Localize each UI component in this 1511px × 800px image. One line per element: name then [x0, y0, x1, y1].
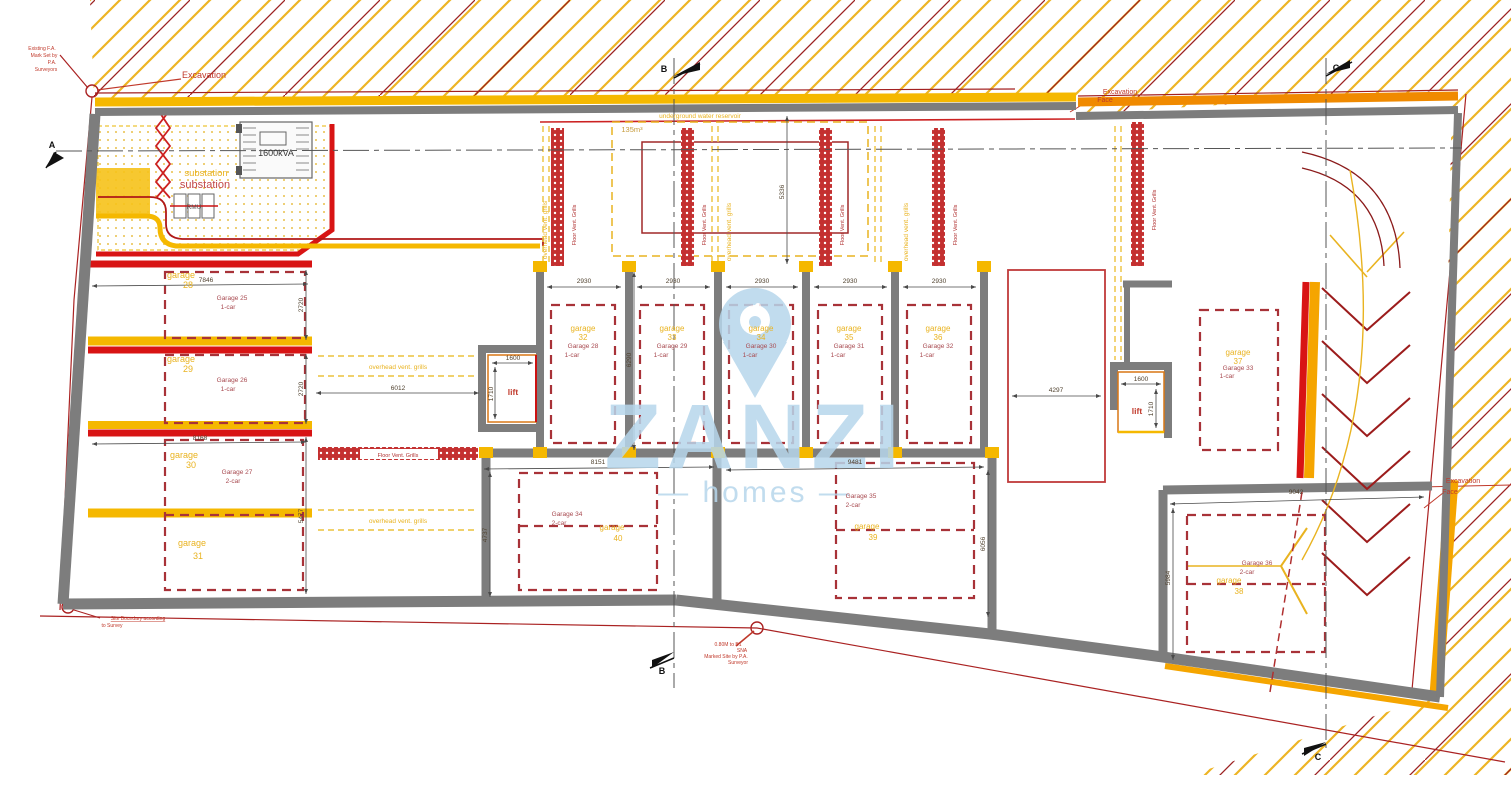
- substation-area: [96, 110, 543, 254]
- garage-yellow-num: 36: [934, 333, 943, 342]
- survey-mark-note-4: Surveyors: [35, 67, 58, 73]
- excavation-face-right-2: Face: [1442, 489, 1458, 496]
- section-c-bottom-label: C: [1315, 752, 1322, 762]
- dim-5984: 5984: [1165, 570, 1172, 585]
- floor-vent-label-3: Floor Vent. Grills: [840, 204, 846, 245]
- transformer-label: 1600kVA: [258, 148, 294, 158]
- dim-7846: 7846: [199, 277, 214, 284]
- garage-yellow-num: 40: [614, 534, 623, 543]
- garage-red-name: Garage 36: [1242, 560, 1273, 567]
- garage-yellow-num: 35: [845, 333, 854, 342]
- dim-5336: 5336: [779, 184, 786, 199]
- excavation-face-top-1: Excavation: [1103, 89, 1137, 96]
- floor-vent-label-6: Floor Vent. Grills: [378, 453, 419, 459]
- garage-yellow-tag: garage: [749, 324, 774, 333]
- garage-red-name: Garage 29: [657, 343, 688, 350]
- garage-yellow-num: 33: [668, 333, 677, 342]
- garage-red-type: 2-car: [846, 502, 862, 509]
- garage-red-type: 2-car: [226, 478, 242, 485]
- garage-red-name: Garage 33: [1223, 365, 1254, 372]
- overhead-vent-label-4: overhead vent. grills: [369, 364, 428, 371]
- garage-red-name: Garage 35: [846, 493, 877, 500]
- dim-5477: 5477: [298, 508, 305, 523]
- dim-9481: 9481: [848, 459, 863, 466]
- garage-red-type: 2-car: [552, 520, 568, 527]
- survey-mark-note-1: Existing F.A.: [28, 46, 56, 52]
- dim-8151: 8151: [591, 459, 606, 466]
- dim-6056: 6056: [980, 536, 987, 551]
- dim-9042: 9042: [1289, 489, 1304, 496]
- garage-yellow-num: 29: [183, 364, 193, 374]
- garage-red-type: 1-car: [920, 352, 936, 359]
- reservoir-caption: underground water reservoir: [659, 113, 741, 120]
- dim-1710b: 1710: [1148, 401, 1155, 416]
- garage-yellow-num: 31: [193, 551, 203, 561]
- watermark: ZANZI — homes —: [605, 288, 906, 509]
- section-c-top-label: C: [1333, 63, 1340, 73]
- dim-2930b: 2930: [666, 278, 681, 285]
- floor-vent-label-4: Floor Vent. Grills: [953, 204, 959, 245]
- lift-left-label: lift: [508, 387, 519, 397]
- garage-yellow-tag: garage: [837, 324, 862, 333]
- watermark-brand: ZANZI: [605, 386, 906, 488]
- section-a-label: A: [49, 140, 56, 150]
- site-boundary-note-1: Site Boundary according: [111, 616, 166, 622]
- excavation-face-top-2: Face: [1097, 97, 1113, 104]
- garage-red-type: 2-car: [1240, 569, 1256, 576]
- section-b-bottom-label: B: [659, 666, 666, 676]
- garage-yellow-tag: garage: [926, 324, 951, 333]
- reservoir-volume: 135m³: [621, 125, 643, 134]
- section-b-top-label: B: [661, 64, 668, 74]
- garage-red-type: 1-car: [743, 352, 759, 359]
- garage-red-type: 1-car: [831, 352, 847, 359]
- left-bay-bands: [88, 264, 312, 513]
- garage-yellow-tag: garage: [178, 538, 206, 548]
- watermark-tagline: — homes —: [658, 476, 852, 509]
- basement-floor-plan-svg: ZANZI — homes — Excavation Excavation Fa…: [0, 0, 1511, 800]
- survey-mark-note-3: P.A.: [48, 60, 57, 66]
- garage-yellow-tag: garage: [1217, 576, 1242, 585]
- garage-yellow-num: 28: [183, 280, 193, 290]
- datum-note-4: Surveyor: [728, 660, 748, 666]
- dim-2930e: 2930: [932, 278, 947, 285]
- garage-red-type: 1-car: [221, 386, 237, 393]
- dim-1600a: 1600: [506, 355, 521, 362]
- floor-vent-label-2: Floor Vent. Grills: [702, 204, 708, 245]
- garage-yellow-tag: garage: [571, 324, 596, 333]
- dim-4737: 4737: [482, 527, 489, 542]
- substation-label-yellow: substation: [184, 168, 227, 179]
- floor-vent-label-5: Floor Vent. Grills: [1152, 189, 1158, 230]
- garage-red-type: 1-car: [654, 352, 670, 359]
- overhead-vent-label-2: overhead vent. grills: [726, 202, 733, 261]
- garage-red-name: Garage 32: [923, 343, 954, 350]
- garage-red-name: Garage 34: [552, 511, 583, 518]
- garage-yellow-num: 39: [869, 533, 878, 542]
- overhead-vent-label-5: overhead vent. grills: [369, 518, 428, 525]
- substation-label-red: substation: [180, 179, 230, 191]
- garage-yellow-tag: garage: [600, 523, 625, 532]
- garage-yellow-tag: garage: [1226, 348, 1251, 357]
- rmu-label: RMU: [187, 204, 202, 211]
- dim-1710a: 1710: [488, 386, 495, 401]
- dim-6290: 6290: [626, 352, 633, 367]
- excavation-face-right-1: Excavation: [1446, 478, 1480, 485]
- dim-2720a: 2720: [298, 297, 305, 312]
- garage-red-type: 1-car: [565, 352, 581, 359]
- drawing-canvas: ZANZI — homes — Excavation Excavation Fa…: [0, 0, 1511, 800]
- site-boundary-note-2: to Survey: [101, 623, 123, 629]
- garage-yellow-num: 34: [757, 333, 766, 342]
- garage-red-name: Garage 30: [746, 343, 777, 350]
- dim-2720b: 2720: [298, 381, 305, 396]
- garage-yellow-num: 32: [579, 333, 588, 342]
- overhead-vent-label-3: overhead vent. grills: [903, 202, 910, 261]
- overhead-vent-label-1: overhead vent. grills: [542, 200, 549, 259]
- garage-red-name: Garage 28: [568, 343, 599, 350]
- garage-yellow-num: 30: [186, 460, 196, 470]
- ramp-area: [1187, 152, 1410, 692]
- garage-red-name: Garage 27: [222, 469, 253, 476]
- dim-4297: 4297: [1049, 387, 1064, 394]
- garage-yellow-tag: garage: [855, 522, 880, 531]
- dim-2930c: 2930: [755, 278, 770, 285]
- garage-yellow-num: 38: [1235, 587, 1244, 596]
- excavation-label: Excavation: [182, 70, 226, 80]
- garage-yellow-tag: garage: [660, 324, 685, 333]
- garage-yellow-tag: garage: [167, 354, 195, 364]
- garage-yellow-tag: garage: [167, 270, 195, 280]
- dim-1600b: 1600: [1134, 376, 1149, 383]
- dim-8168: 8168: [193, 435, 208, 442]
- garage-red-type: 1-car: [221, 304, 237, 311]
- garage-yellow-tag: garage: [170, 450, 198, 460]
- garage-red-type: 1-car: [1220, 373, 1236, 380]
- dim-2930d: 2930: [843, 278, 858, 285]
- dim-6012: 6012: [391, 385, 406, 392]
- garage-red-name: Garage 31: [834, 343, 865, 350]
- dim-2930a: 2930: [577, 278, 592, 285]
- garage-red-name: Garage 25: [217, 295, 248, 302]
- garage-red-name: Garage 26: [217, 377, 248, 384]
- lift-right-label: lift: [1132, 406, 1143, 416]
- survey-mark-note-2: Mark Set by: [31, 53, 58, 59]
- floor-vent-label-1: Floor Vent. Grills: [572, 204, 578, 245]
